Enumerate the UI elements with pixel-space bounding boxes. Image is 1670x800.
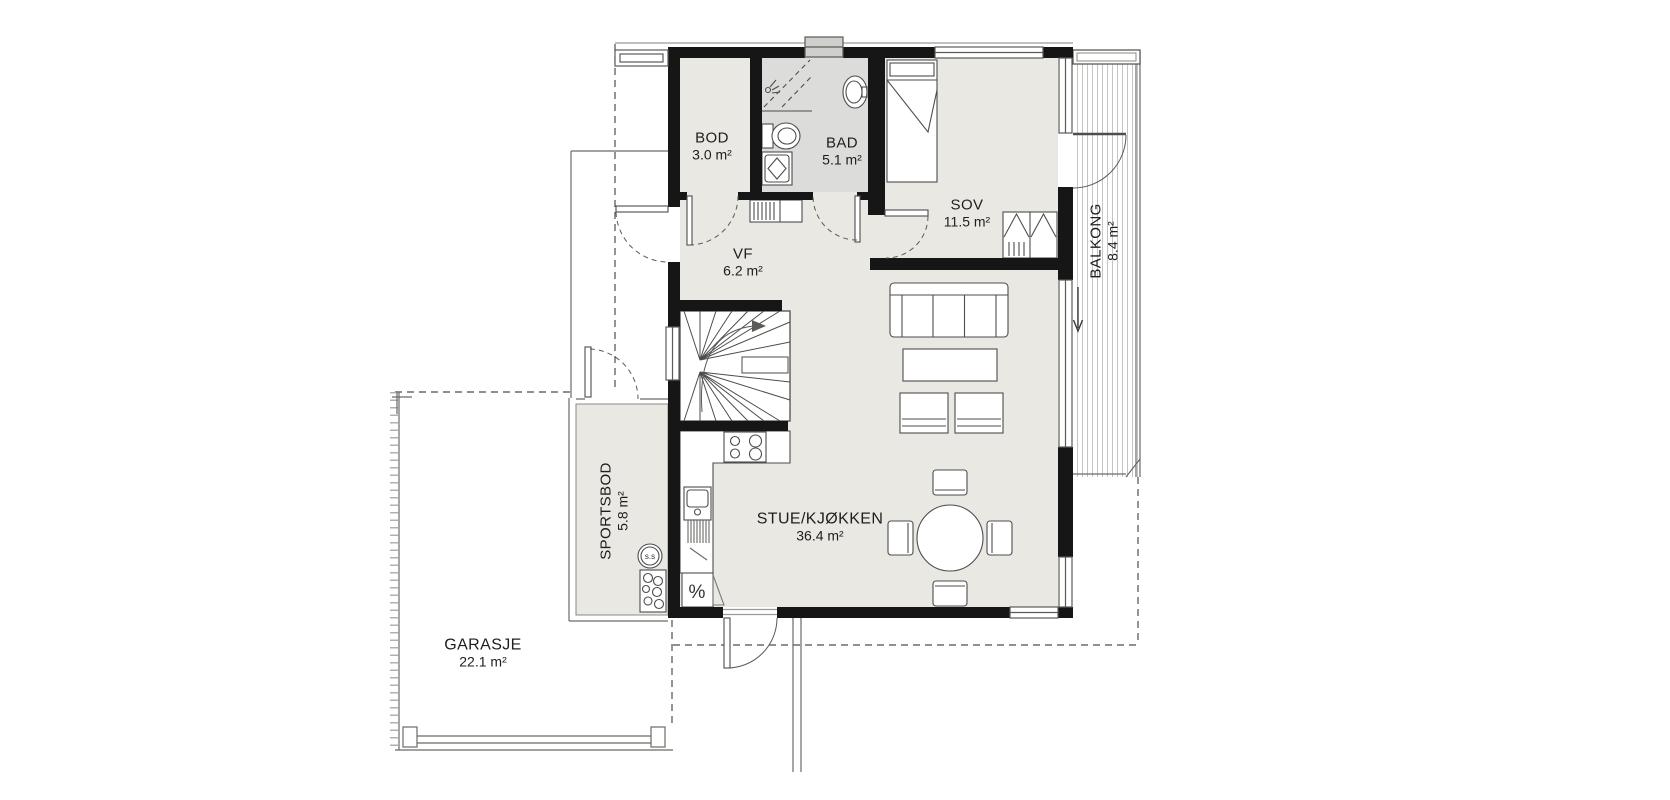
vent-window [805, 37, 843, 57]
bed [887, 60, 937, 182]
balcony-deck [1073, 52, 1140, 477]
balcony [1073, 50, 1140, 477]
door-entry [724, 618, 777, 668]
washing-machine [762, 152, 792, 185]
dining-chair [888, 521, 913, 555]
dining-table [917, 505, 983, 571]
armchair [900, 393, 948, 433]
window [666, 327, 679, 380]
door-sportsbod [576, 347, 668, 399]
dining-chair [933, 470, 967, 495]
window [1059, 557, 1072, 607]
ss-symbol-label: s.s [645, 552, 655, 561]
floor-plan-drawing: s.s % [0, 0, 1670, 800]
sofa [890, 283, 1008, 337]
window [1059, 280, 1072, 447]
porch-window [615, 50, 668, 66]
floor-plan-page: s.s % BOD 3.0 m² BAD 5.1 m² SOV 11.5 m² … [0, 0, 1670, 800]
dining-chair [987, 521, 1012, 555]
toilet [762, 124, 773, 148]
window [935, 47, 1043, 58]
armchair [955, 393, 1003, 433]
door-vf-exterior [616, 206, 668, 262]
coffee-table [903, 349, 997, 381]
hall-cabinet [750, 200, 802, 222]
staircase [680, 311, 790, 421]
dishwasher-symbol-label: % [689, 582, 706, 603]
window [1059, 58, 1072, 133]
window [1010, 607, 1058, 618]
entry-path [723, 610, 801, 773]
dining-chair [933, 581, 967, 606]
